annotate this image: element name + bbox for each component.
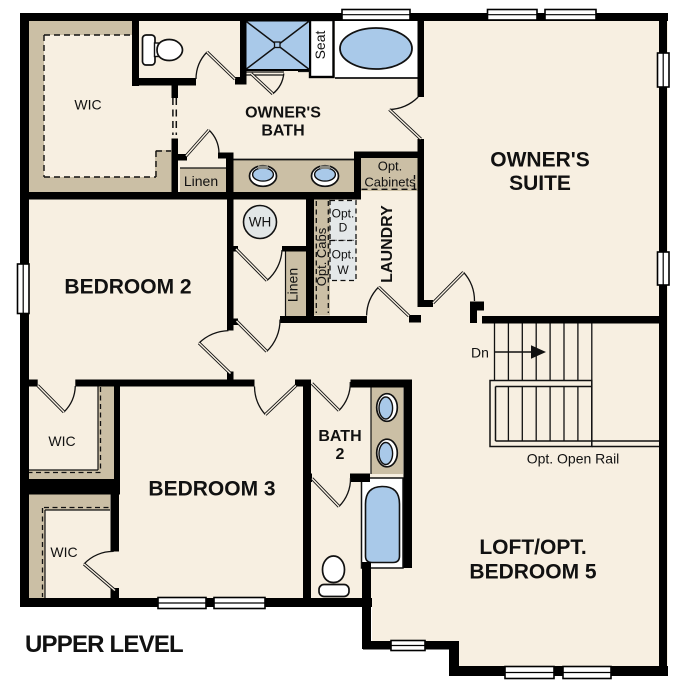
svg-text:OWNER'S: OWNER'S xyxy=(490,149,590,172)
svg-text:LAUNDRY: LAUNDRY xyxy=(379,205,396,283)
svg-text:Linen: Linen xyxy=(184,173,218,189)
svg-text:Opt.: Opt. xyxy=(332,248,355,262)
svg-text:Seat: Seat xyxy=(312,30,328,59)
svg-text:BEDROOM 2: BEDROOM 2 xyxy=(64,276,191,299)
svg-text:BATH: BATH xyxy=(261,123,304,140)
svg-text:Opt.: Opt. xyxy=(332,207,355,221)
svg-text:WH: WH xyxy=(249,215,272,230)
svg-text:WIC: WIC xyxy=(48,433,75,449)
svg-text:UPPER LEVEL: UPPER LEVEL xyxy=(25,631,183,658)
svg-text:WIC: WIC xyxy=(74,97,101,113)
svg-text:Opt. Open Rail: Opt. Open Rail xyxy=(527,451,620,467)
svg-text:BATH: BATH xyxy=(318,428,361,445)
svg-text:Linen: Linen xyxy=(285,268,301,302)
svg-text:WIC: WIC xyxy=(50,544,77,560)
svg-text:Dn: Dn xyxy=(471,345,489,361)
svg-text:Cabinets: Cabinets xyxy=(364,175,416,190)
svg-text:LOFT/OPT.: LOFT/OPT. xyxy=(479,536,586,559)
svg-text:D: D xyxy=(339,221,348,235)
svg-text:2: 2 xyxy=(336,446,345,463)
svg-text:Opt.: Opt. xyxy=(378,159,403,174)
svg-text:SUITE: SUITE xyxy=(509,172,571,195)
svg-text:OWNER'S: OWNER'S xyxy=(245,105,321,122)
svg-text:BEDROOM 5: BEDROOM 5 xyxy=(469,561,597,584)
svg-text:W: W xyxy=(337,263,349,277)
svg-text:Opt. Cabs: Opt. Cabs xyxy=(314,227,329,286)
svg-text:BEDROOM 3: BEDROOM 3 xyxy=(148,478,275,501)
